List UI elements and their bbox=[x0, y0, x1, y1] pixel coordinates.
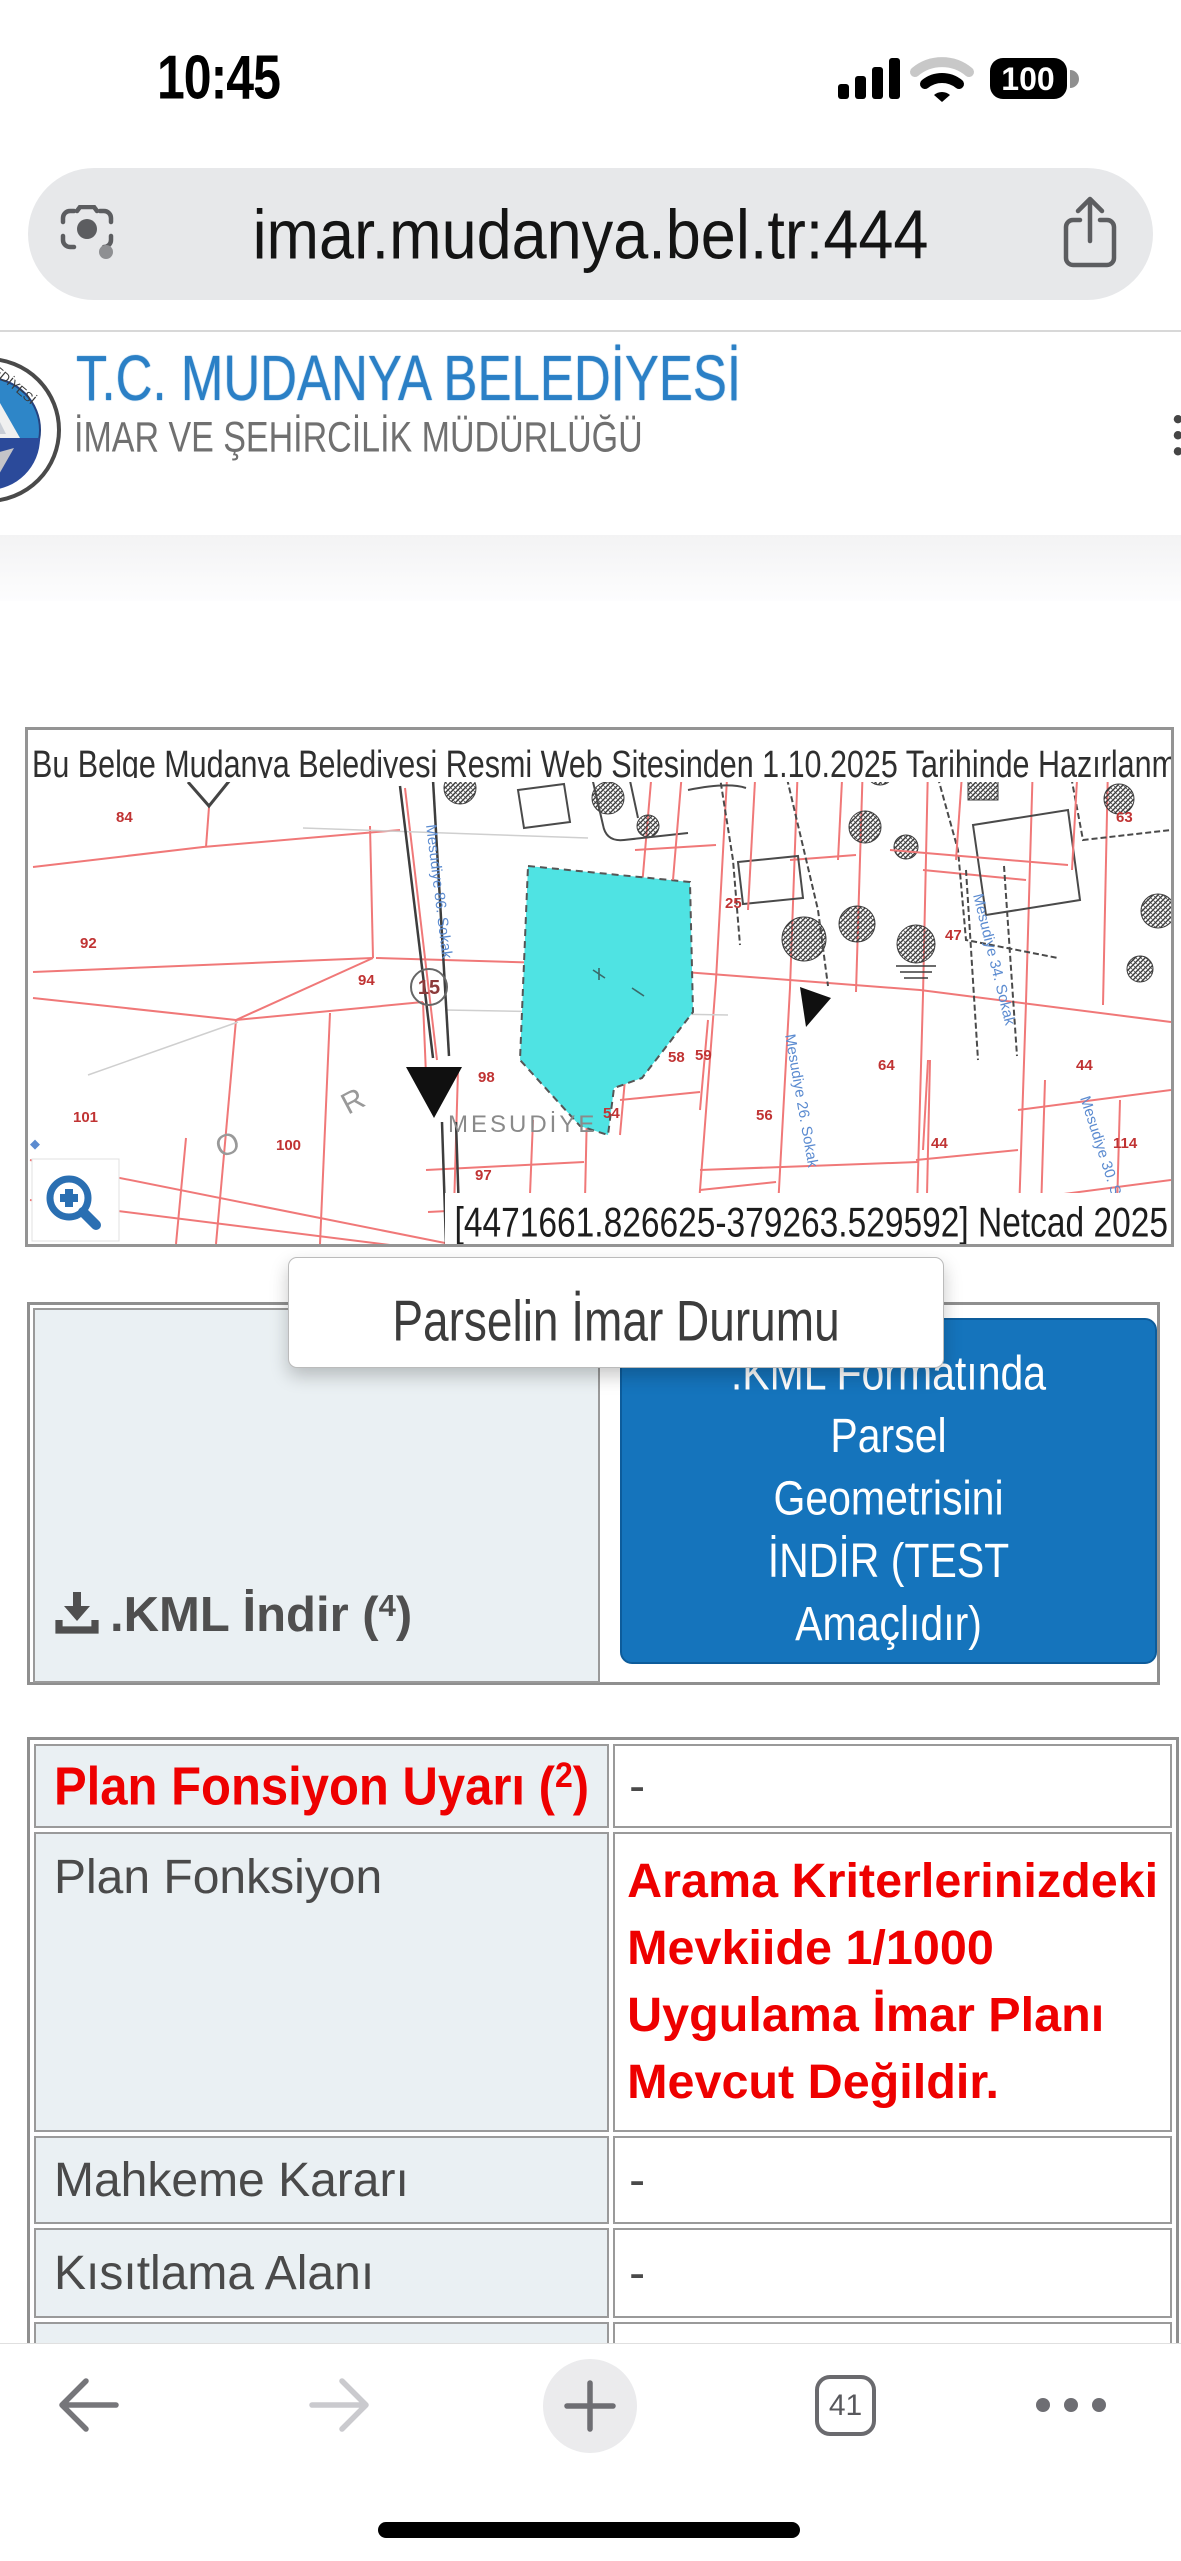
svg-text:Mesudiye 26. Sokak: Mesudiye 26. Sokak bbox=[781, 1033, 821, 1169]
svg-text:◆: ◆ bbox=[30, 1136, 40, 1151]
svg-text:64: 64 bbox=[878, 1057, 895, 1074]
svg-text:R: R bbox=[336, 1082, 371, 1121]
svg-text:84: 84 bbox=[116, 809, 133, 826]
svg-text:MESUDİYE: MESUDİYE bbox=[448, 1111, 597, 1138]
svg-text:15: 15 bbox=[418, 977, 440, 999]
svg-text:98: 98 bbox=[478, 1069, 495, 1086]
svg-text:Mesudiye 86. Sokak: Mesudiye 86. Sokak bbox=[422, 823, 455, 960]
svg-text:92: 92 bbox=[80, 935, 97, 952]
svg-text:56: 56 bbox=[756, 1107, 773, 1124]
svg-text:114: 114 bbox=[1113, 1135, 1138, 1152]
svg-text:100: 100 bbox=[1001, 61, 1054, 97]
svg-text:63: 63 bbox=[1116, 809, 1133, 826]
svg-text:44: 44 bbox=[1076, 1057, 1093, 1074]
svg-text:94: 94 bbox=[358, 972, 375, 989]
svg-text:100: 100 bbox=[276, 1137, 301, 1154]
svg-text:101: 101 bbox=[73, 1109, 98, 1126]
svg-text:O: O bbox=[211, 1126, 244, 1165]
svg-text:54: 54 bbox=[603, 1105, 620, 1122]
svg-text:47: 47 bbox=[945, 927, 962, 944]
svg-text:97: 97 bbox=[475, 1167, 492, 1184]
svg-text:58: 58 bbox=[668, 1049, 685, 1066]
svg-text:59: 59 bbox=[695, 1047, 712, 1064]
svg-text:25: 25 bbox=[725, 895, 742, 912]
svg-text:44: 44 bbox=[931, 1135, 948, 1152]
